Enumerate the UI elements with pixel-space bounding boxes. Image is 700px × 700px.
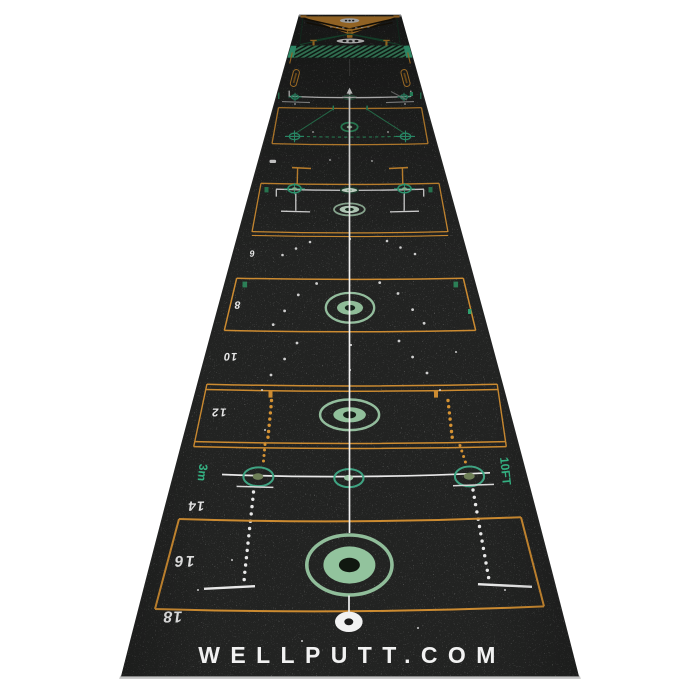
svg-text:10: 10: [222, 350, 238, 362]
